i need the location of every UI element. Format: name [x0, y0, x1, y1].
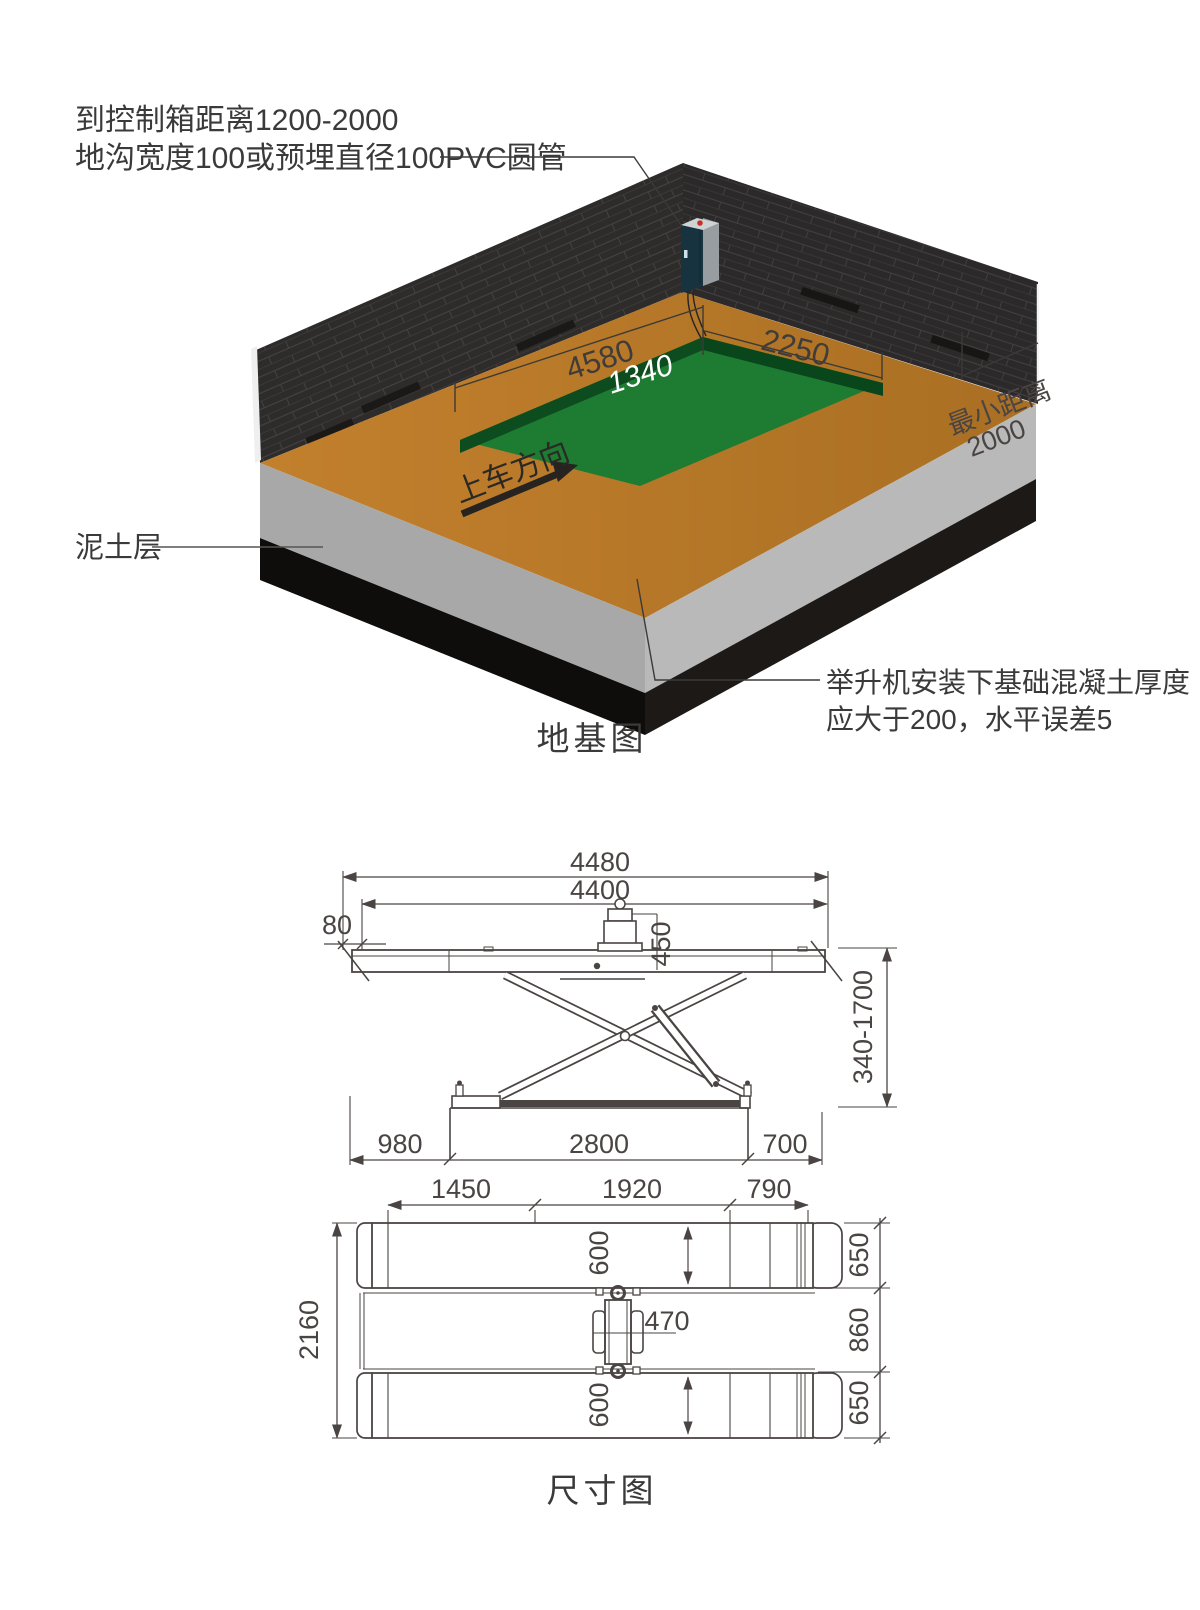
dimension-diagram-title: 尺寸图	[547, 1472, 658, 1509]
control-box-note-line2: 地沟宽度100或预埋直径100PVC圆管	[75, 142, 567, 175]
dim-right-top: 650	[844, 1232, 874, 1277]
dim-runway-width-top: 600	[584, 1230, 614, 1275]
dim-seg-left: 1450	[431, 1174, 491, 1204]
side-view-drawing	[324, 871, 897, 1223]
dim-overall-width: 2160	[294, 1300, 324, 1360]
dim-ramp-offset: 80	[322, 910, 352, 940]
soil-layer-label: 泥土层	[75, 531, 162, 564]
control-box-label	[684, 250, 688, 258]
dim-center-unit-width: 470	[644, 1306, 689, 1336]
foundation-diagram-title: 地基图	[537, 720, 648, 757]
dim-power-unit-height: 450	[646, 921, 676, 966]
control-box-note-line1: 到控制箱距离1200-2000	[75, 104, 398, 137]
dim-seg-mid: 1920	[602, 1174, 662, 1204]
concrete-note-line1: 举升机安装下基础混凝土厚度	[826, 667, 1190, 698]
dim-platform-length: 4400	[570, 875, 630, 905]
dim-right-mid: 860	[844, 1307, 874, 1352]
dim-pit-offset-left: 980	[377, 1129, 422, 1159]
concrete-note-line2: 应大于200，水平误差5	[826, 704, 1112, 735]
dim-overall-length: 4480	[570, 847, 630, 877]
dim-pit-offset-right: 700	[762, 1129, 807, 1159]
dim-right-bottom: 650	[844, 1380, 874, 1425]
dim-lift-height-range: 340-1700	[848, 970, 878, 1084]
drawing-canvas: 4580 1340 2250 最小距离 2000 上车方向 到控制箱距离1200…	[0, 0, 1200, 1610]
dim-pit-length-side: 2800	[569, 1129, 629, 1159]
dim-runway-width-bottom: 600	[584, 1382, 614, 1427]
control-box-red-button	[697, 220, 703, 226]
dim-seg-right: 790	[746, 1174, 791, 1204]
foundation-isometric-scene: 4580 1340 2250 最小距离 2000 上车方向 到控制箱距离1200…	[75, 104, 1190, 757]
control-box	[681, 218, 719, 293]
technical-drawing-page: 4580 1340 2250 最小距离 2000 上车方向 到控制箱距离1200…	[0, 0, 1200, 1610]
